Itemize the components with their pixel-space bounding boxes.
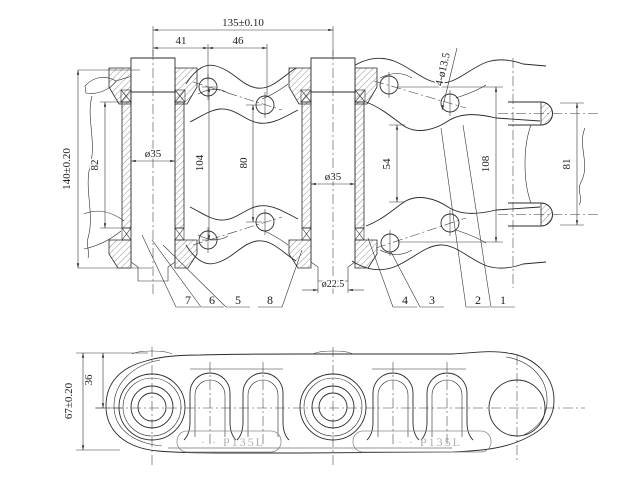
dim-41-label: 41	[176, 35, 187, 47]
dim-bore-right-label: ø35	[325, 171, 342, 183]
shoe-windows	[184, 373, 473, 440]
bottom-centerlines	[95, 347, 585, 468]
drawing-sheet: 135±0.10 41 46 140±0.20 82 104 80 54	[0, 0, 640, 480]
dim-pin-end-label: ø22.5	[322, 279, 345, 290]
callout-7-label: 7	[185, 293, 191, 307]
callout-5-label: 5	[235, 293, 241, 307]
bottom-plan-view: · · P135L · · P135L 67±0.20 36	[63, 347, 585, 468]
link-holes	[193, 72, 466, 256]
dim-54-label: 54	[381, 158, 393, 170]
technical-drawing-canvas: 135±0.10 41 46 140±0.20 82 104 80 54	[0, 0, 640, 480]
shoe-outline	[106, 351, 554, 453]
dim-36-label: 36	[83, 374, 95, 386]
dim-81-label: 81	[561, 159, 573, 170]
dim-46-label: 46	[233, 35, 245, 47]
dim-140-label: 140±0.20	[61, 148, 73, 190]
part-marking-1: · · P135L	[201, 435, 265, 449]
dim-82-label: 82	[89, 160, 101, 171]
callout-2-label: 2	[475, 293, 481, 307]
main-section-view: 135±0.10 41 46 140±0.20 82 104 80 54	[61, 17, 598, 307]
dim-80-label: 80	[238, 157, 250, 169]
dim-bore-left-label: ø35	[145, 148, 162, 160]
dim-104-label: 104	[194, 154, 206, 171]
part-marking-2: · · P135L	[398, 435, 462, 449]
callout-1-label: 1	[500, 293, 506, 307]
pin-assembly-left	[109, 50, 197, 294]
pin-end-stubs	[498, 58, 598, 288]
dim-108-label: 108	[480, 155, 492, 172]
embossed-markings: · · P135L · · P135L	[177, 431, 491, 452]
callout-3-label: 3	[429, 293, 435, 307]
callout-8-label: 8	[267, 293, 273, 307]
dim-67-label: 67±0.20	[63, 382, 75, 419]
dim-pitch-label: 135±0.10	[222, 17, 264, 29]
lower-right-link-plate	[352, 198, 546, 270]
callout-4-label: 4	[402, 293, 408, 307]
lower-left-link-plate	[186, 206, 298, 264]
